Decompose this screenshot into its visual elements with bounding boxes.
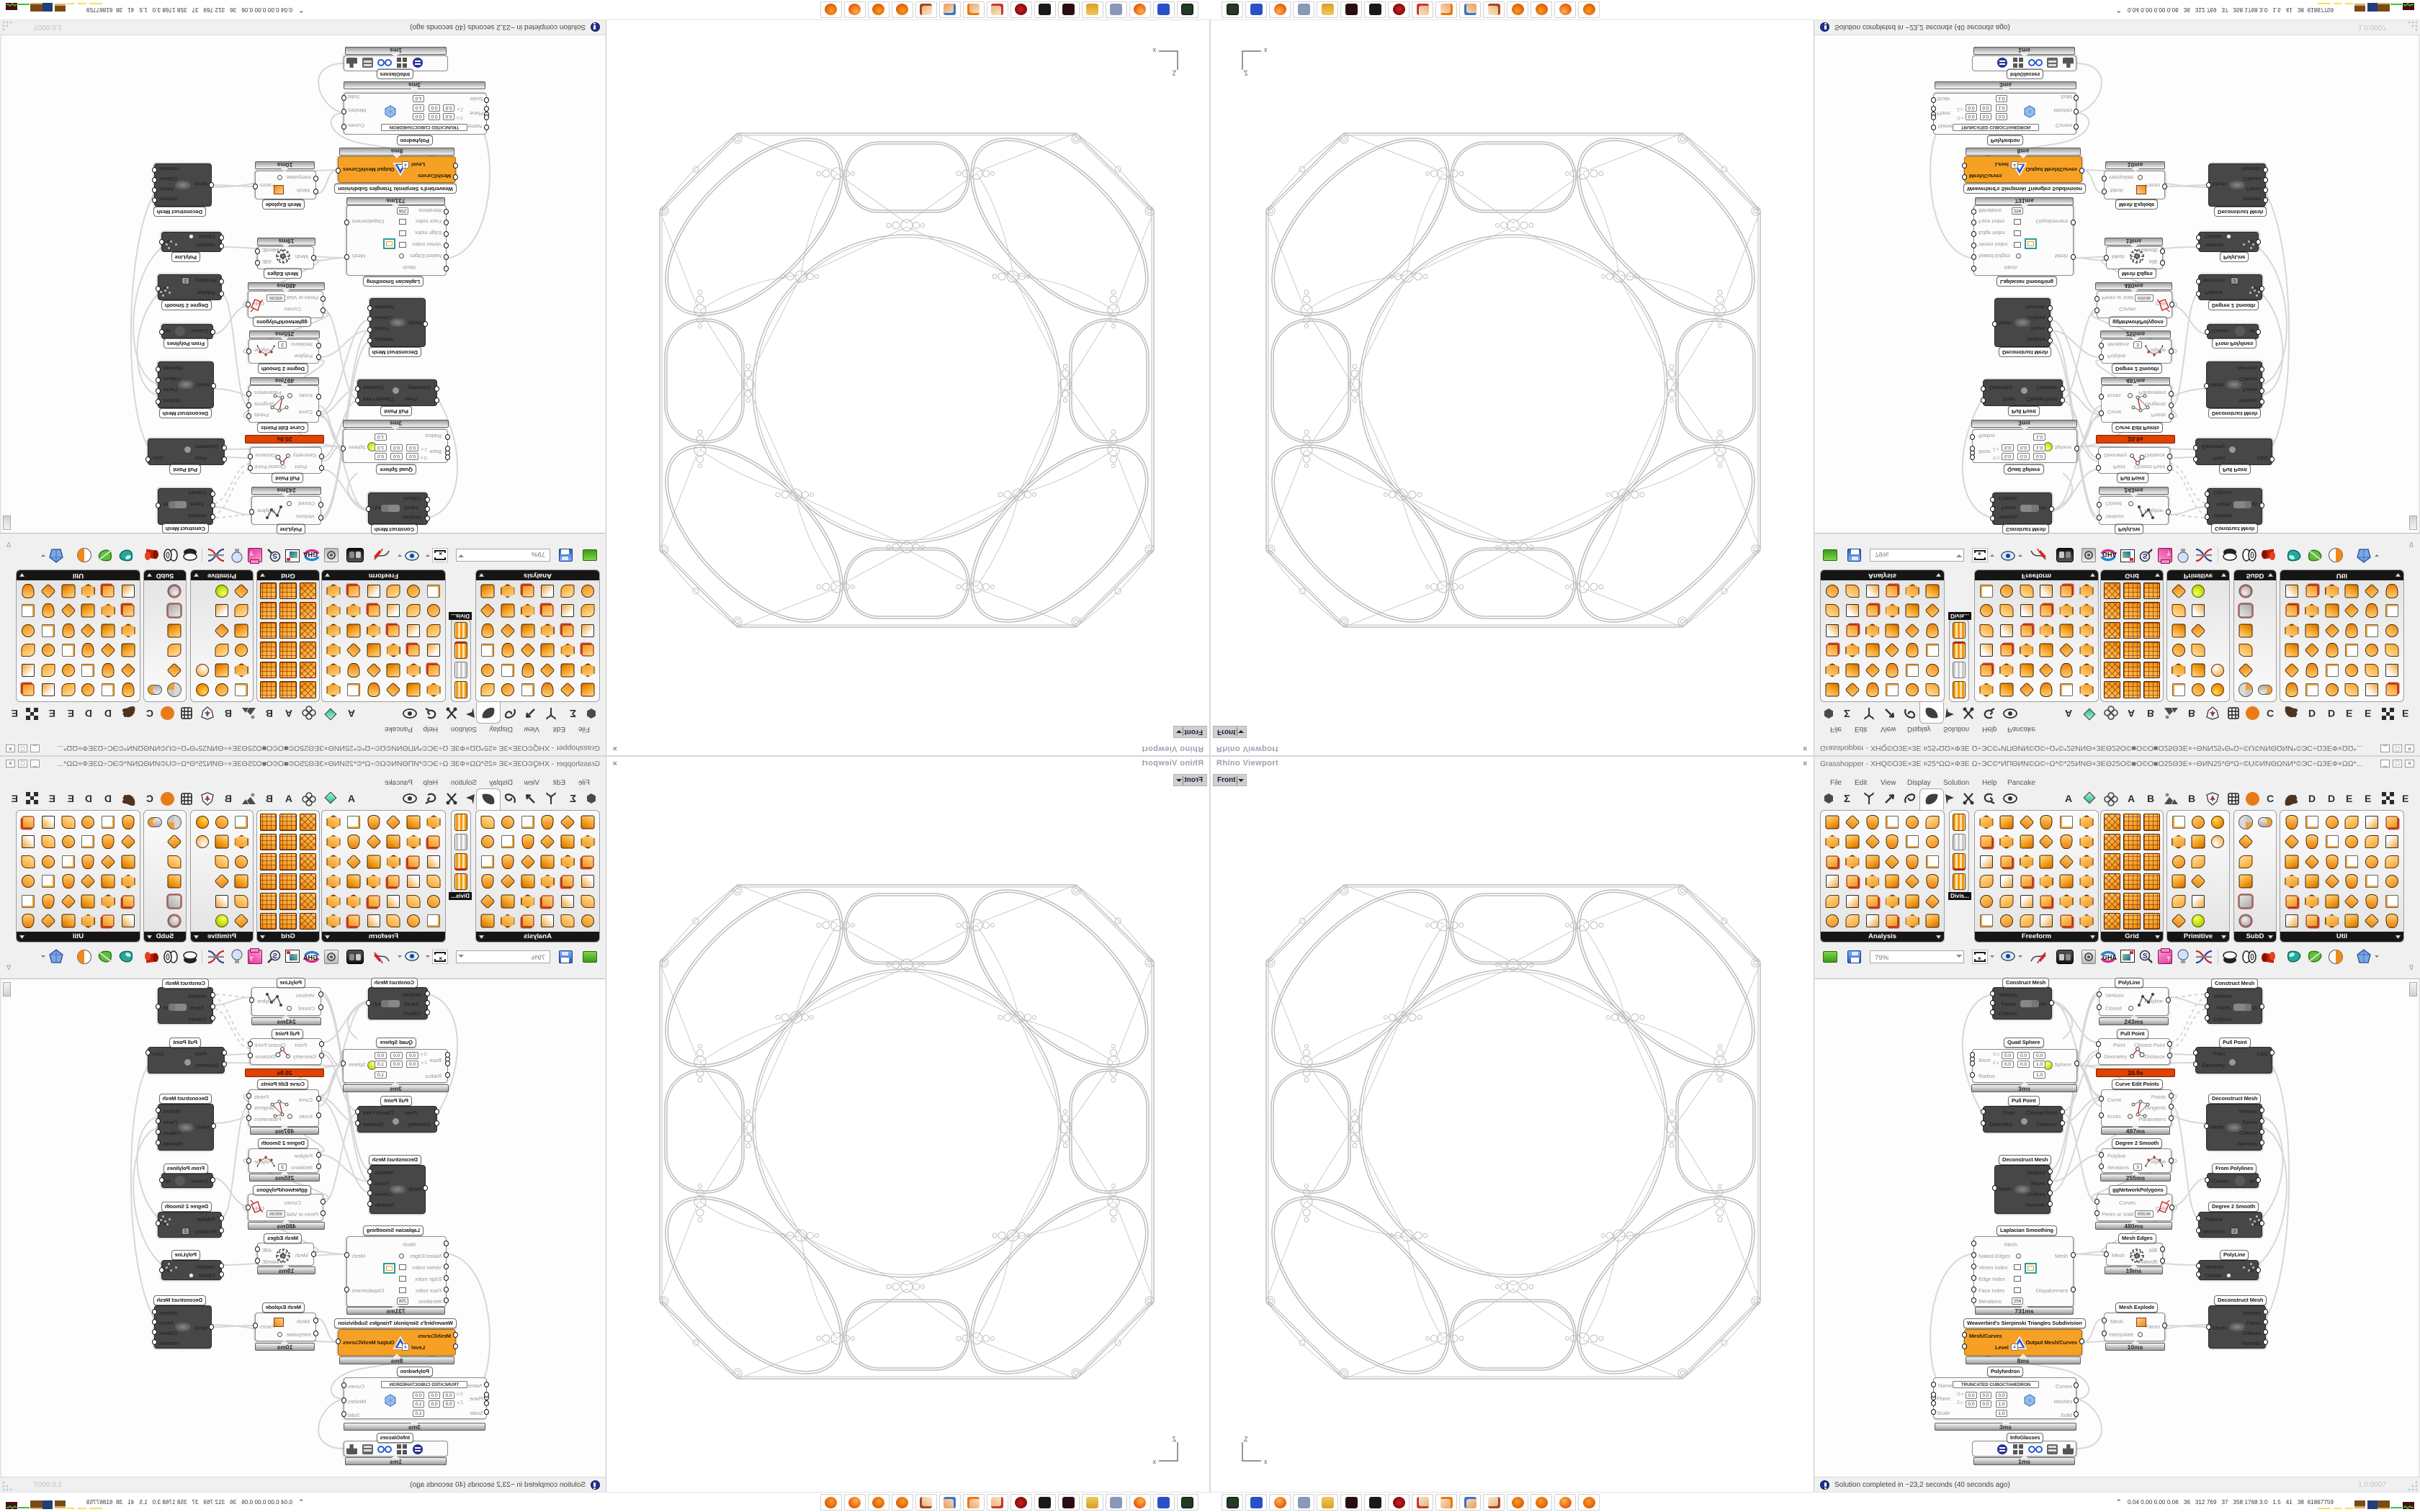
svg-text:x: x — [1152, 1458, 1156, 1465]
svg-text:x: x — [1152, 47, 1156, 54]
svg-text:Z: Z — [1244, 1436, 1248, 1443]
svg-text:Z: Z — [1244, 69, 1248, 76]
svg-text:x: x — [1264, 47, 1268, 54]
svg-text:x: x — [1264, 1458, 1268, 1465]
svg-text:Z: Z — [1172, 1436, 1176, 1443]
svg-text:Z: Z — [1172, 69, 1176, 76]
